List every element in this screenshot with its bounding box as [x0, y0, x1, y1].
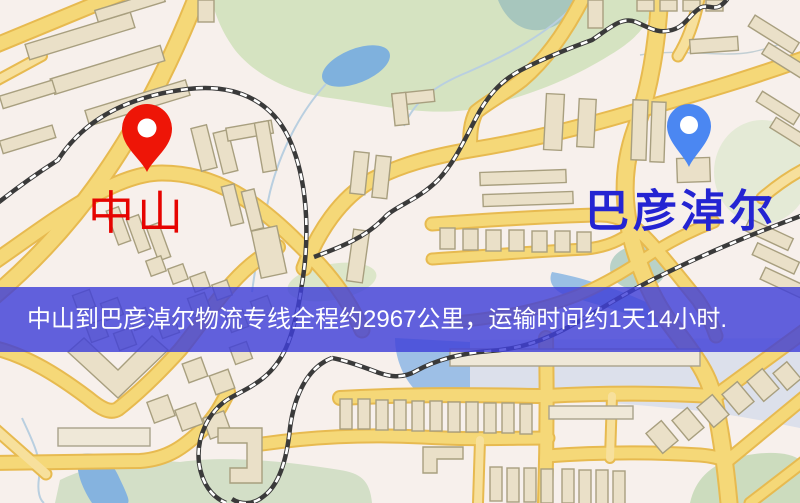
destination-pin-hole	[680, 116, 698, 134]
map-view[interactable]: 中山 巴彦淖尔 中山到巴彦淖尔物流专线全程约2967公里，运输时间约1天14小时…	[0, 0, 800, 503]
route-info-text: 中山到巴彦淖尔物流专线全程约2967公里，运输时间约1天14小时.	[27, 306, 727, 333]
map-canvas	[0, 0, 800, 503]
origin-pin-hole	[138, 119, 157, 138]
route-info-banner: 中山到巴彦淖尔物流专线全程约2967公里，运输时间约1天14小时.	[0, 287, 800, 352]
